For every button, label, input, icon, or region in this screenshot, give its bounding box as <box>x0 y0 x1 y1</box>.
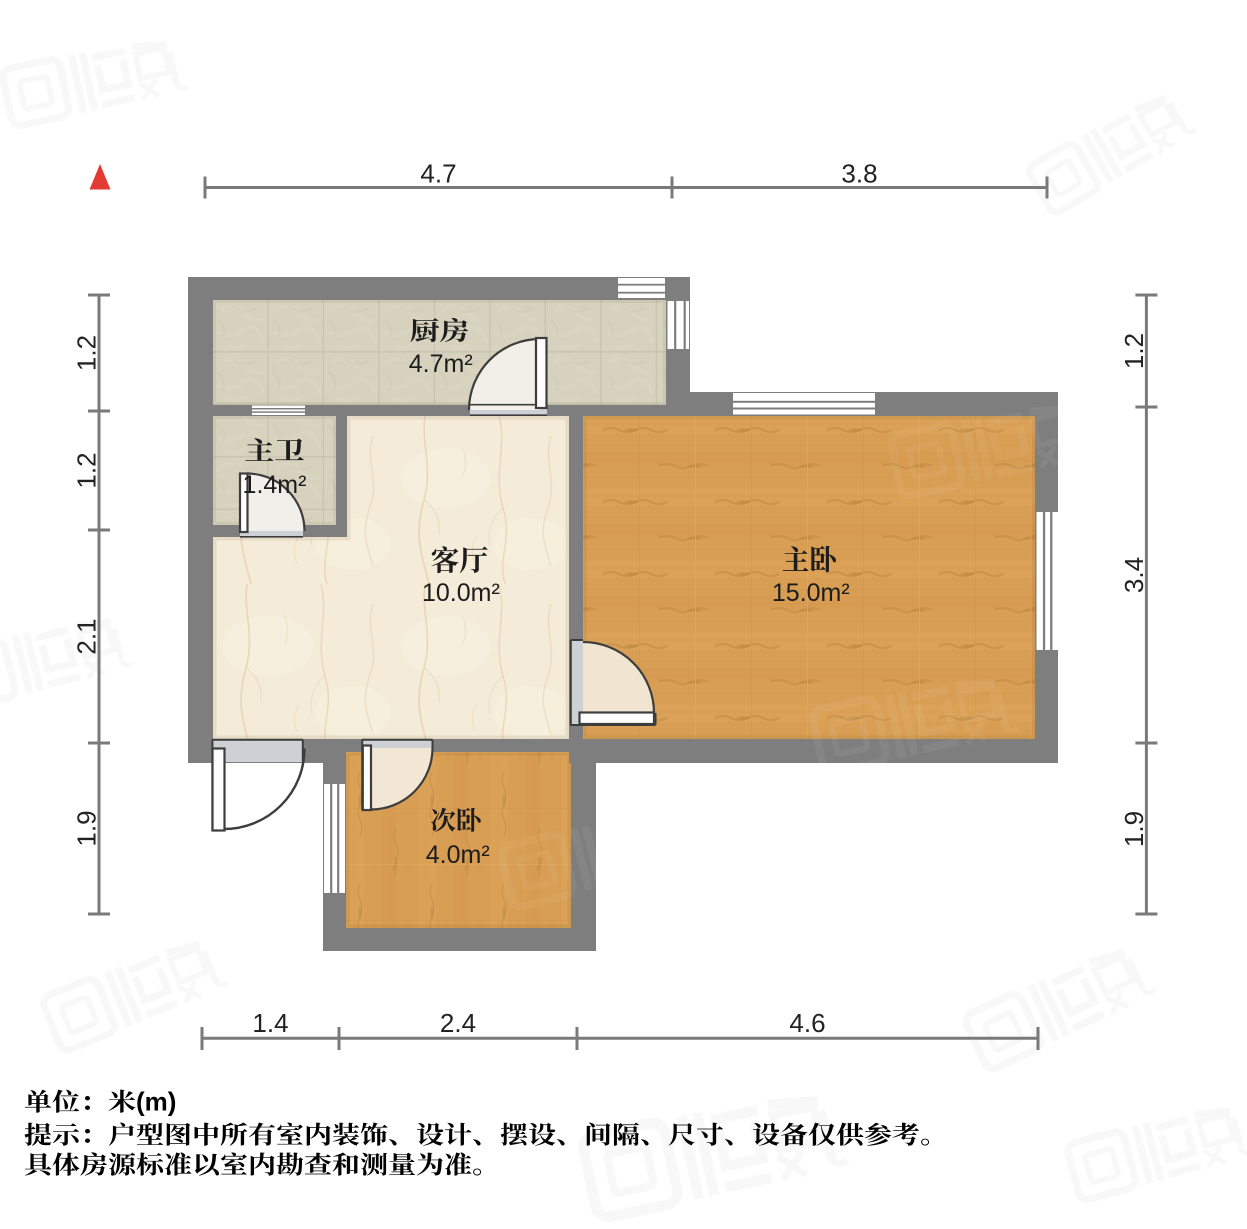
svg-text:1.2: 1.2 <box>72 335 102 371</box>
svg-text:1.2: 1.2 <box>72 452 102 488</box>
svg-text:1.2: 1.2 <box>1119 333 1149 369</box>
svg-text:(m): (m) <box>136 1087 176 1117</box>
svg-text:4.6: 4.6 <box>789 1008 825 1038</box>
svg-text:1.4m²: 1.4m² <box>243 471 307 499</box>
svg-text:1.4: 1.4 <box>252 1008 288 1038</box>
svg-text:4.7m²: 4.7m² <box>409 350 473 378</box>
svg-text:4.0m²: 4.0m² <box>426 841 490 869</box>
svg-text:2.1: 2.1 <box>72 618 102 654</box>
svg-text:3.8: 3.8 <box>841 159 877 189</box>
svg-text:1.9: 1.9 <box>1119 811 1149 847</box>
svg-text:15.0m²: 15.0m² <box>772 579 850 607</box>
svg-text:2.4: 2.4 <box>440 1008 476 1038</box>
svg-text:1.9: 1.9 <box>72 810 102 846</box>
svg-text:4.7: 4.7 <box>420 159 456 189</box>
svg-text:3.4: 3.4 <box>1119 557 1149 593</box>
svg-text:10.0m²: 10.0m² <box>422 579 500 607</box>
